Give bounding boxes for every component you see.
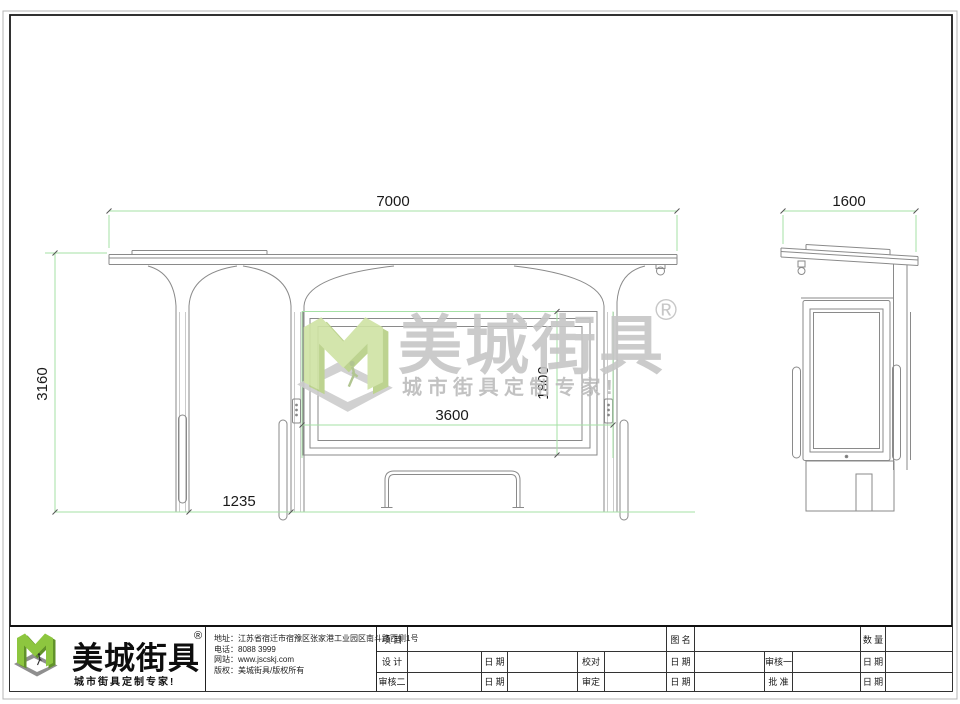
side-roof-ridge xyxy=(806,245,890,250)
field-date-label: 日 期 xyxy=(861,673,886,691)
table-row: 审核二 日 期 审定 日 期 批 准 日 期 xyxy=(377,673,952,691)
watermark-brand: 美城街具 xyxy=(398,310,666,382)
field-reviewer1-label: 审核一 xyxy=(765,652,793,671)
side-roof-clamp xyxy=(798,261,805,267)
side-base xyxy=(806,461,894,511)
company-phone: 电话：8088 3999 xyxy=(214,645,376,656)
dim-3160-label: 3160 xyxy=(34,367,51,400)
watermark-registered-icon: ® xyxy=(655,294,677,327)
field-reviewer1-value xyxy=(793,652,861,671)
side-view xyxy=(781,245,918,512)
field-verify-value xyxy=(605,673,667,691)
side-ad-panel xyxy=(801,298,893,461)
company-copyright: 版权：美城街具/版权所有 xyxy=(214,666,376,677)
field-date-value xyxy=(508,652,578,671)
drawing-sheet: 7000 1600 3160 3600 1800 1235 美城街具 ® 城市街… xyxy=(0,0,960,704)
front-handle-bar xyxy=(620,420,628,520)
field-drawing-name-label: 图 名 xyxy=(667,627,695,651)
front-column-2 xyxy=(243,266,291,512)
field-quantity-value xyxy=(886,627,952,651)
front-column-1 xyxy=(189,266,237,512)
registered-trademark-icon: ® xyxy=(194,630,202,642)
side-handle-bar xyxy=(793,367,801,458)
field-date-label: 日 期 xyxy=(667,673,695,691)
field-reviewer2-value xyxy=(408,673,482,691)
front-column-1 xyxy=(148,266,176,512)
drawing-canvas: 7000 1600 3160 3600 1800 1235 美城街具 ® 城市街… xyxy=(0,0,960,704)
side-roof xyxy=(781,245,918,275)
field-date-value xyxy=(508,673,578,691)
title-block-logo-section: 美城街具 ® 城市街具定制专家! xyxy=(10,627,206,691)
field-proofread-label: 校对 xyxy=(578,652,605,671)
company-brand: 美城街具 xyxy=(72,633,200,678)
field-reviewer2-label: 审核二 xyxy=(377,673,408,691)
watermark-tagline: 城市街具定制专家! xyxy=(402,375,618,399)
dim-1235-label: 1235 xyxy=(222,493,255,510)
side-base-door xyxy=(856,474,872,511)
field-approve-value xyxy=(793,673,861,691)
field-date-label: 日 期 xyxy=(482,673,508,691)
field-approve-label: 批 准 xyxy=(765,673,793,691)
field-project-value xyxy=(408,627,667,651)
field-drawing-name-value xyxy=(695,627,861,651)
watermark-logo-icon xyxy=(297,317,393,412)
front-roof xyxy=(109,251,677,276)
company-address: 地址：江苏省宿迁市宿豫区张家港工业园区南斗路西侧1号 xyxy=(214,634,376,645)
dim-3600-label: 3600 xyxy=(435,407,468,424)
field-verify-label: 审定 xyxy=(578,673,605,691)
side-column xyxy=(894,264,911,470)
field-proofread-value xyxy=(605,652,667,671)
field-design-label: 设 计 xyxy=(377,652,408,671)
field-date-label: 日 期 xyxy=(861,652,886,671)
field-design-value xyxy=(408,652,482,671)
field-date-label: 日 期 xyxy=(482,652,508,671)
field-date-value xyxy=(886,673,952,691)
company-logo-icon xyxy=(10,627,62,677)
company-website: 网站：www.jscskj.com xyxy=(214,655,376,666)
table-row: 项 目 图 名 数 量 xyxy=(377,627,952,652)
dim-1600-label: 1600 xyxy=(832,193,865,210)
front-handle-bar xyxy=(279,420,287,520)
field-date-value xyxy=(886,652,952,671)
field-date-label: 日 期 xyxy=(667,652,695,671)
field-date-value xyxy=(695,673,765,691)
front-bench xyxy=(381,471,524,508)
field-date-value xyxy=(695,652,765,671)
company-tagline: 城市街具定制专家! xyxy=(74,673,175,688)
title-block-company-info: 地址：江苏省宿迁市宿豫区张家港工业园区南斗路西侧1号 电话：8088 3999 … xyxy=(206,627,377,691)
title-block-table: 项 目 图 名 数 量 设 计 日 期 校对 日 期 审核一 日 期 审核二 日… xyxy=(377,627,952,691)
dim-7000-label: 7000 xyxy=(376,193,409,210)
title-block: 美城街具 ® 城市街具定制专家! 地址：江苏省宿迁市宿豫区张家港工业园区南斗路西… xyxy=(10,625,952,691)
side-roof-clamp xyxy=(798,268,805,275)
field-quantity-label: 数 量 xyxy=(861,627,886,651)
front-column-3 xyxy=(617,266,645,512)
table-row: 设 计 日 期 校对 日 期 审核一 日 期 xyxy=(377,652,952,672)
